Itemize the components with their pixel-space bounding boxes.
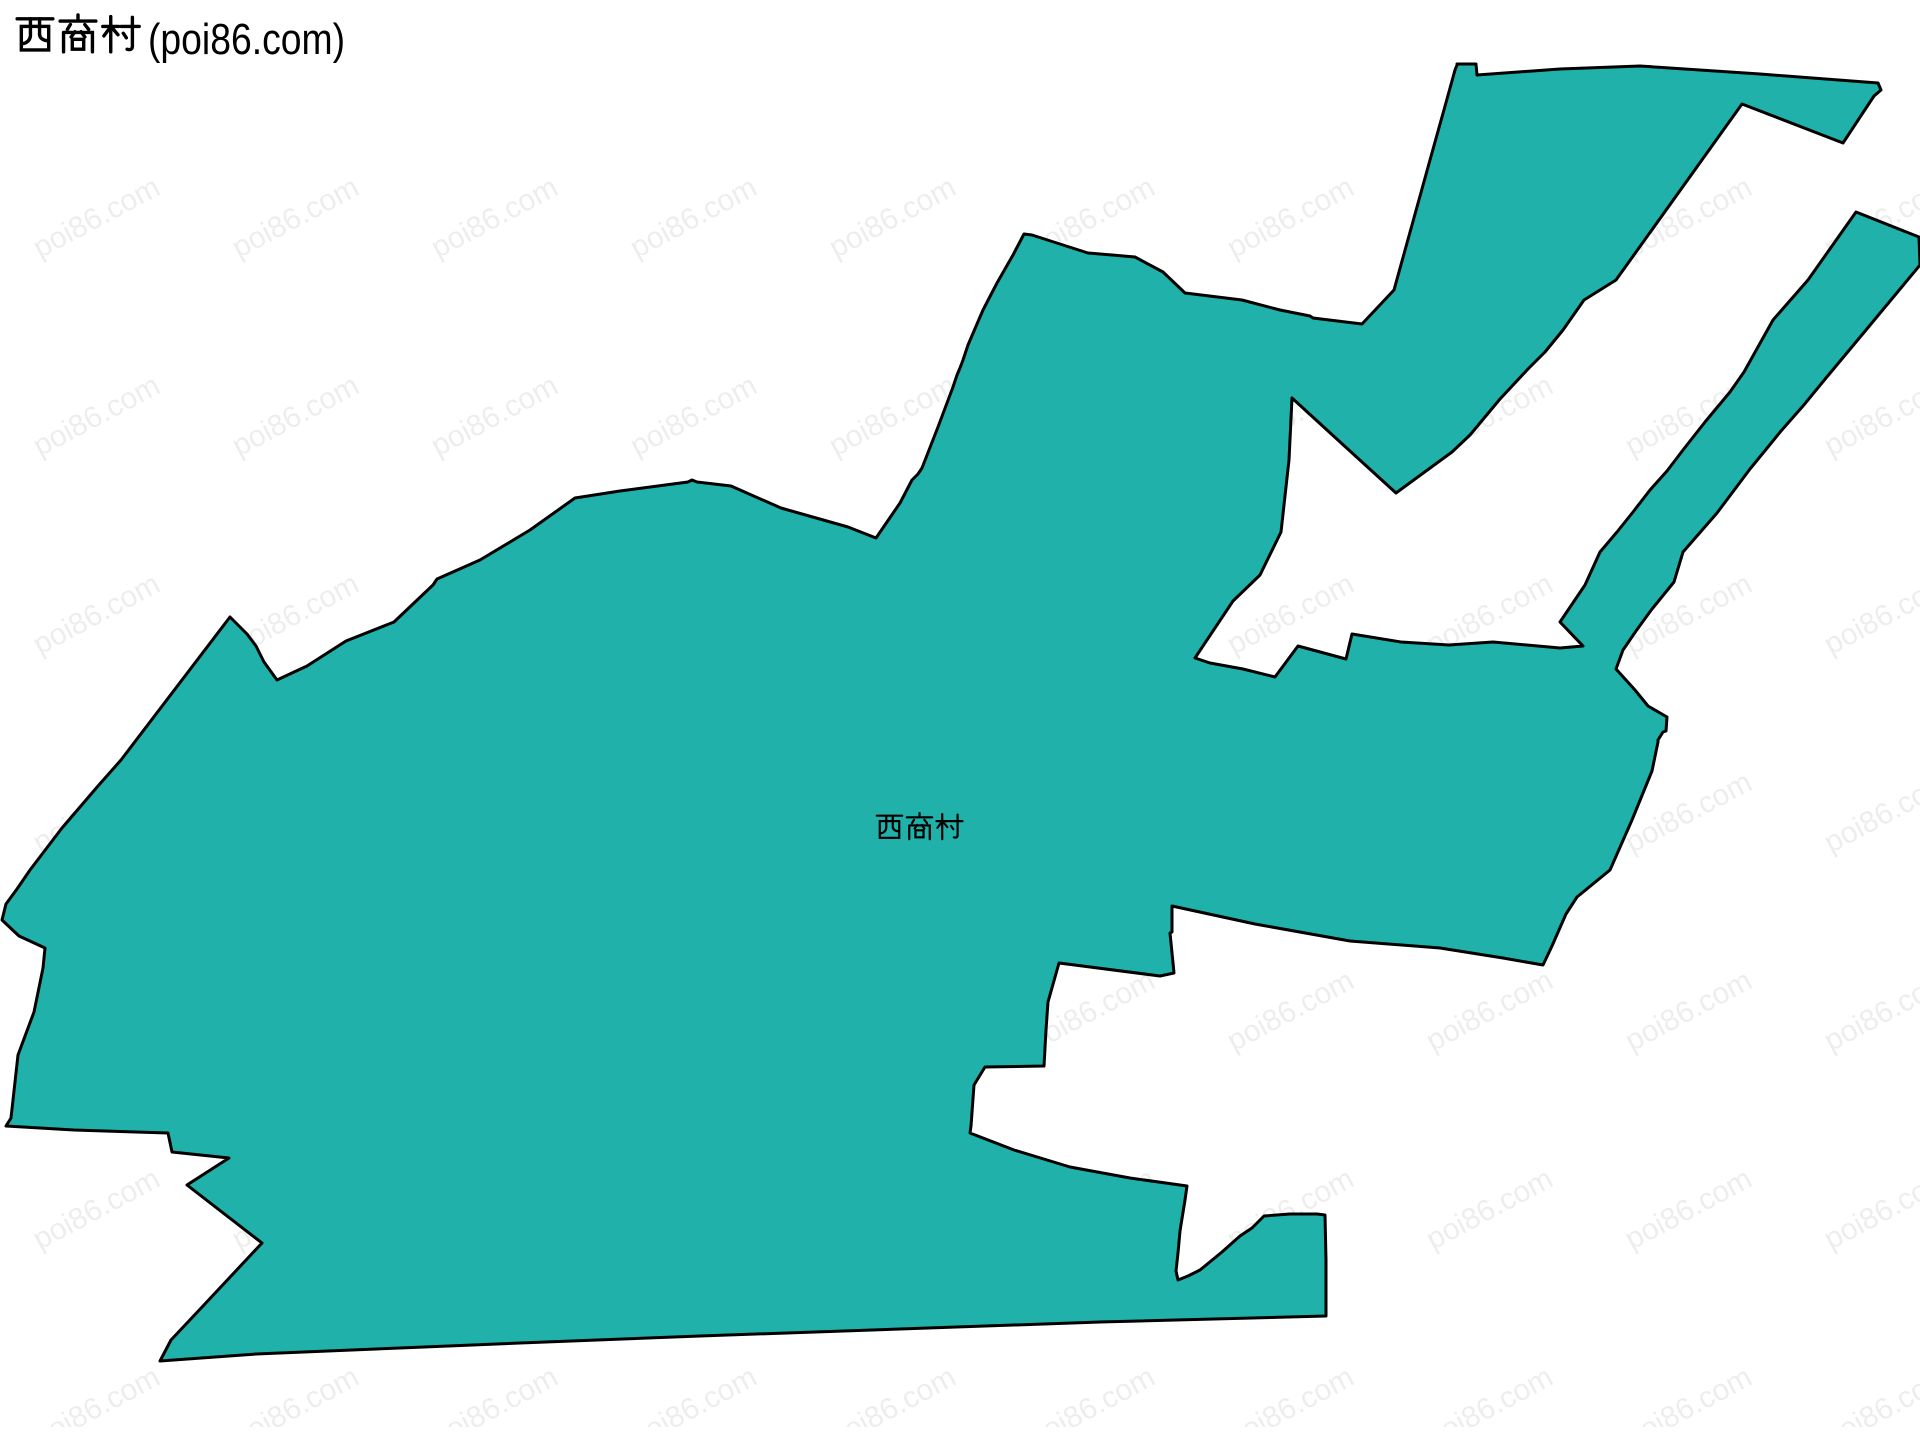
svg-text:(poi86.com): (poi86.com) <box>148 15 345 64</box>
